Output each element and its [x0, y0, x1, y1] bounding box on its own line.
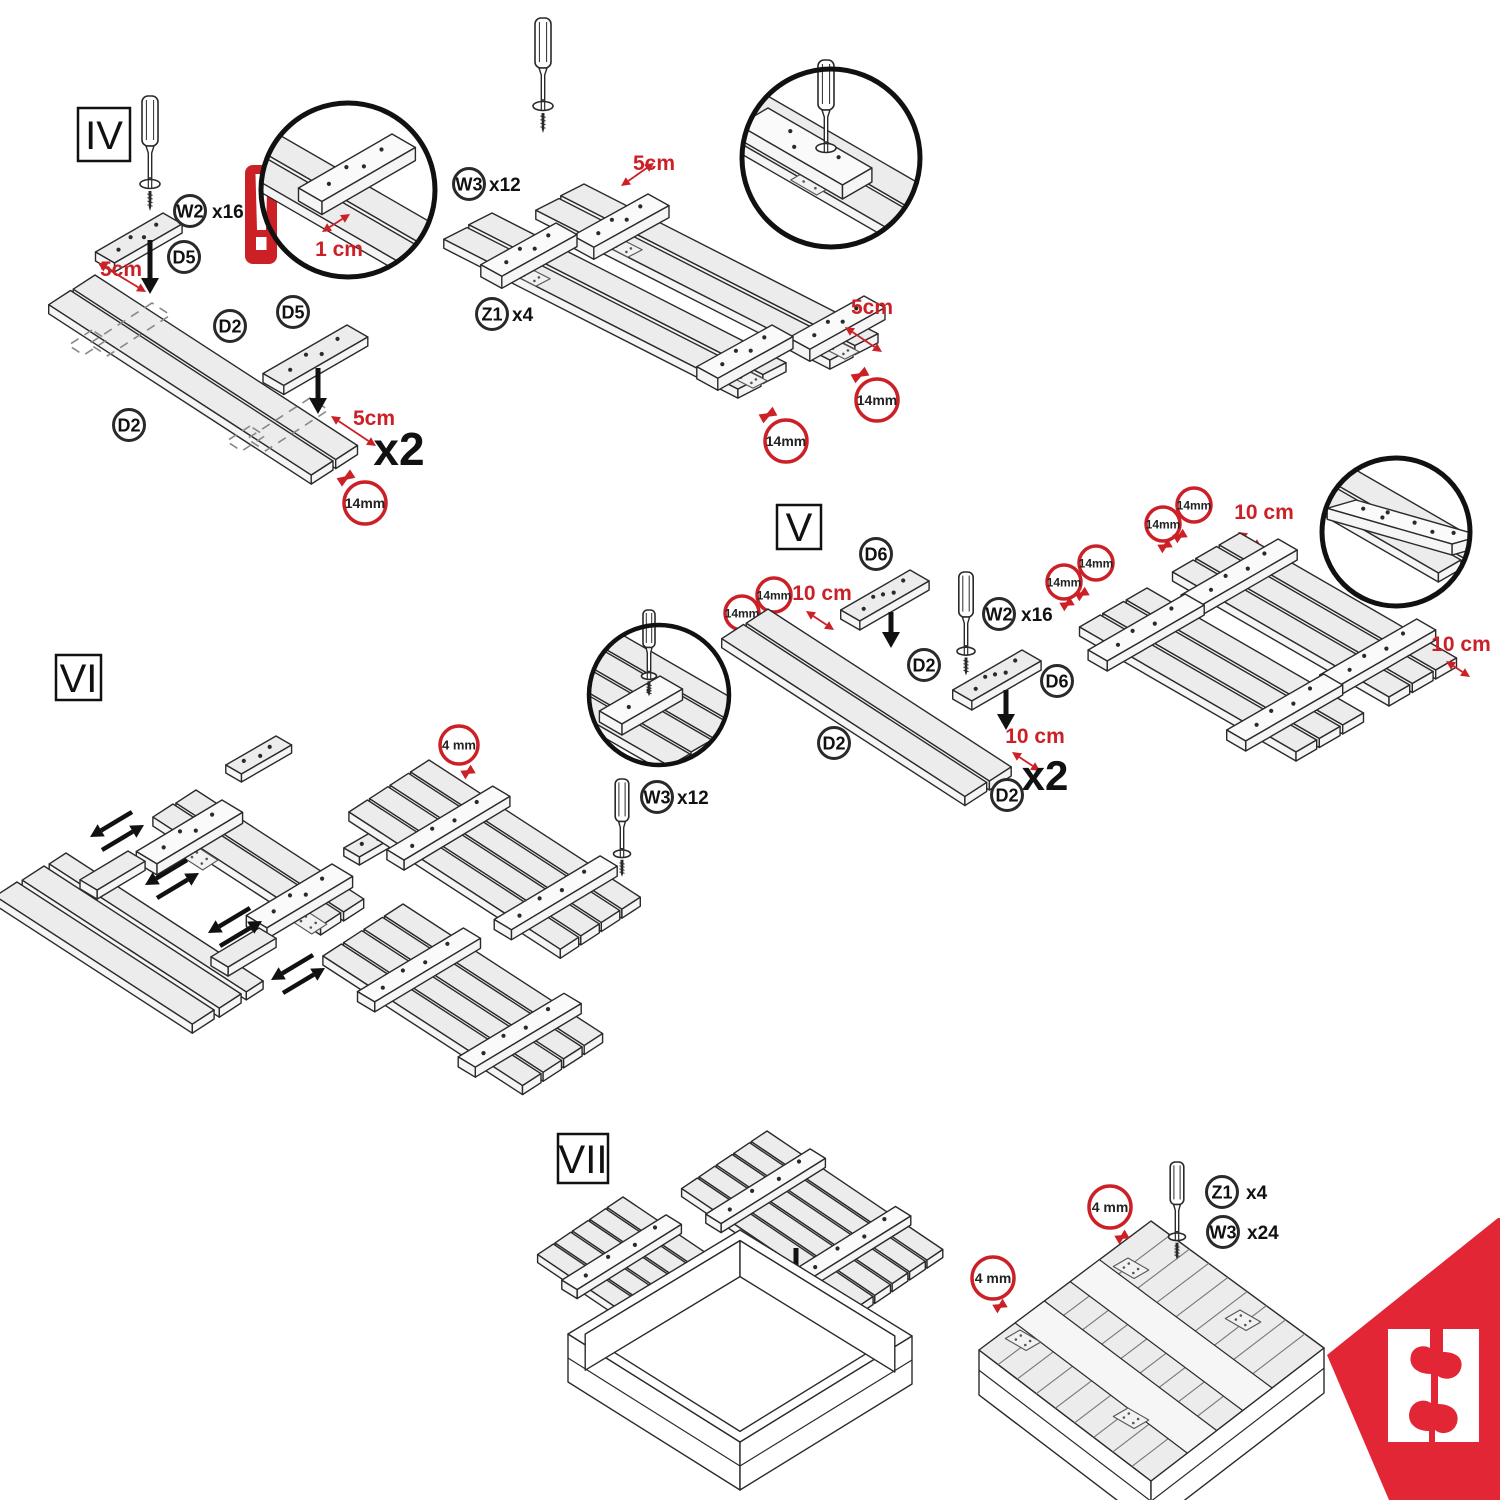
svg-text:14mm: 14mm — [857, 392, 897, 408]
svg-text:10 cm: 10 cm — [1431, 633, 1491, 656]
svg-text:W2: W2 — [177, 202, 204, 222]
svg-text:VII: VII — [559, 1138, 608, 1182]
svg-text:W2: W2 — [986, 605, 1013, 625]
svg-text:x12: x12 — [677, 788, 709, 809]
svg-text:14mm: 14mm — [757, 588, 792, 602]
svg-text:x4: x4 — [1246, 1183, 1268, 1204]
svg-text:D2: D2 — [117, 416, 140, 436]
svg-text:x2: x2 — [1022, 752, 1069, 799]
svg-text:x12: x12 — [489, 175, 521, 196]
svg-text:14mm: 14mm — [345, 495, 385, 511]
svg-text:D2: D2 — [822, 734, 845, 754]
svg-text:x16: x16 — [1021, 605, 1053, 626]
svg-text:14mm: 14mm — [766, 433, 806, 449]
svg-text:W3: W3 — [1210, 1223, 1237, 1243]
svg-text:D5: D5 — [281, 303, 304, 323]
svg-text:5cm: 5cm — [851, 296, 893, 319]
svg-text:W3: W3 — [456, 175, 483, 195]
svg-text:4 mm: 4 mm — [975, 1270, 1012, 1286]
svg-text:5cm: 5cm — [633, 152, 675, 175]
svg-text:14mm: 14mm — [1177, 498, 1212, 512]
svg-text:10 cm: 10 cm — [1234, 501, 1294, 524]
svg-text:W3: W3 — [644, 788, 671, 808]
svg-text:VI: VI — [60, 657, 98, 701]
svg-text:x4: x4 — [512, 305, 534, 326]
svg-text:V: V — [786, 506, 813, 550]
svg-text:D2: D2 — [995, 786, 1018, 806]
svg-text:x2: x2 — [373, 423, 424, 475]
svg-text:4 mm: 4 mm — [442, 738, 476, 753]
svg-text:10 cm: 10 cm — [792, 582, 852, 605]
svg-text:x24: x24 — [1247, 1223, 1279, 1244]
svg-text:4 mm: 4 mm — [1092, 1199, 1129, 1215]
svg-text:10 cm: 10 cm — [1005, 725, 1065, 748]
svg-text:14mm: 14mm — [1047, 575, 1082, 589]
svg-text:D5: D5 — [172, 248, 195, 268]
svg-text:Z1: Z1 — [481, 305, 502, 325]
svg-text:D2: D2 — [912, 656, 935, 676]
svg-text:x16: x16 — [212, 202, 244, 223]
svg-text:14mm: 14mm — [1146, 517, 1181, 531]
svg-text:D6: D6 — [1045, 672, 1068, 692]
svg-text:1 cm: 1 cm — [315, 238, 363, 261]
svg-text:Z1: Z1 — [1211, 1183, 1232, 1203]
svg-text:D6: D6 — [864, 545, 887, 565]
svg-text:D2: D2 — [218, 317, 241, 337]
svg-text:IV: IV — [85, 114, 123, 158]
svg-text:14mm: 14mm — [1079, 556, 1114, 570]
